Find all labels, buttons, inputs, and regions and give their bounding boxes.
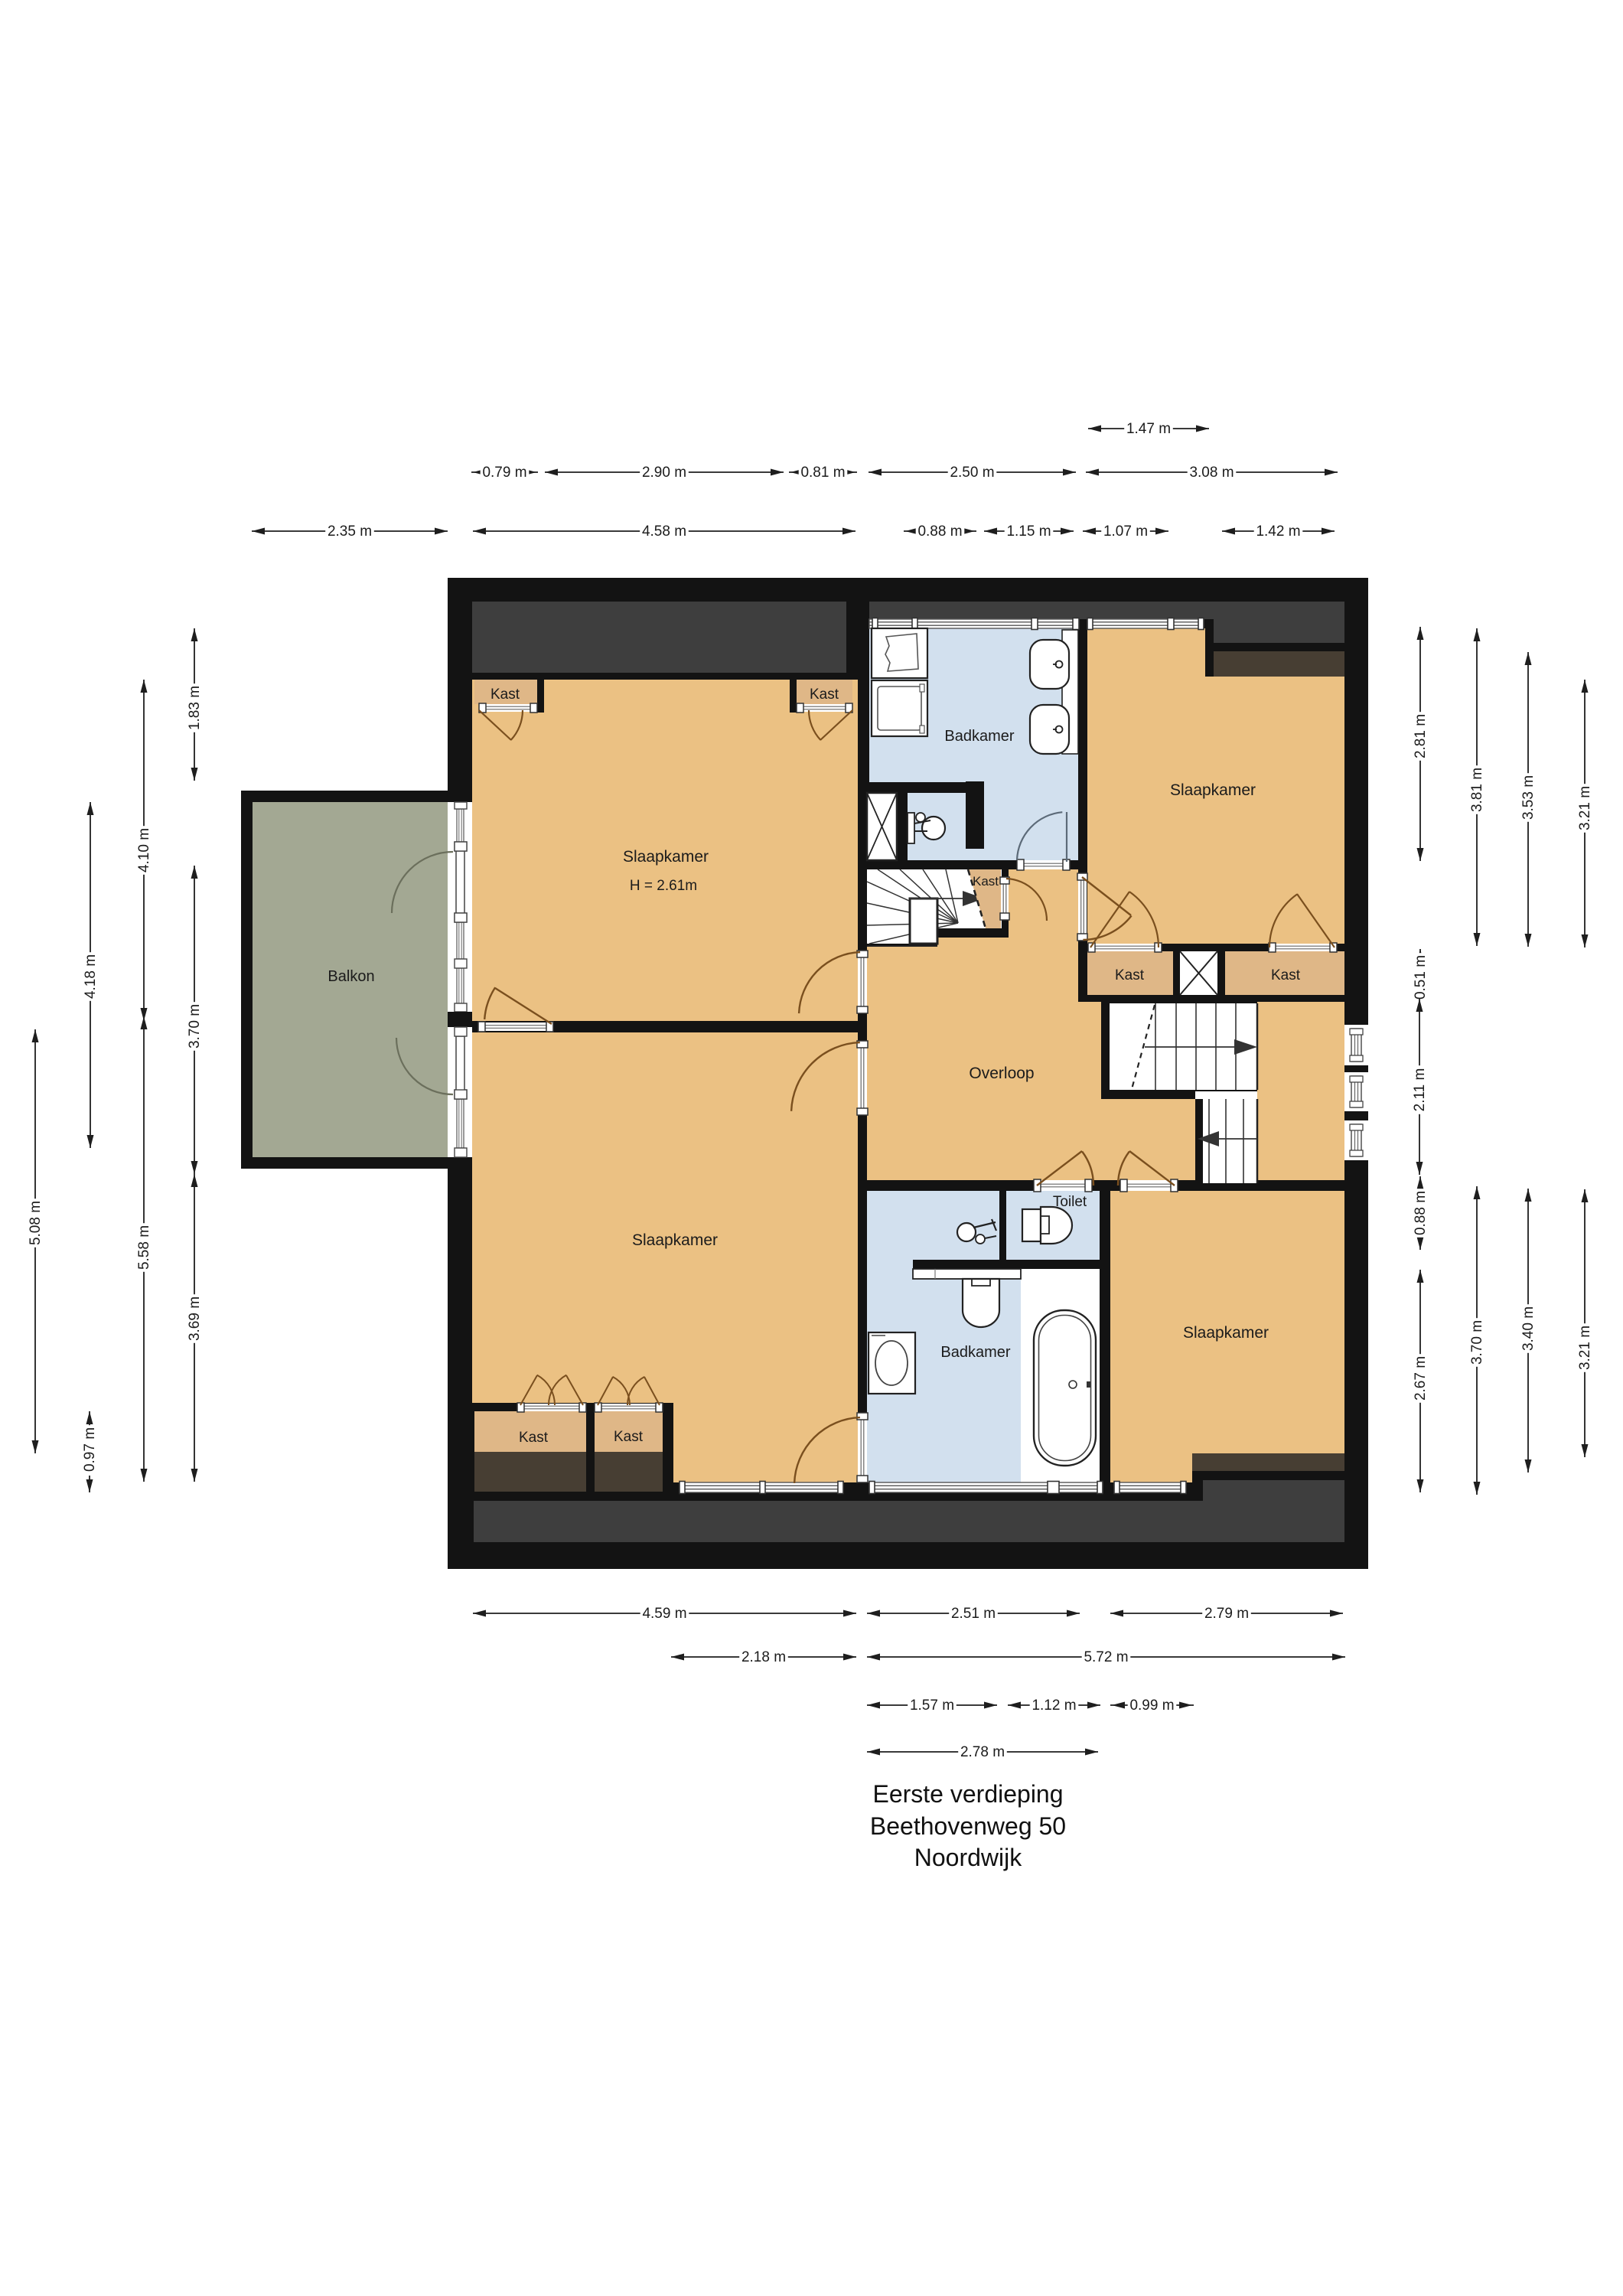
svg-text:0.79 m: 0.79 m [482,465,526,481]
svg-text:Kast: Kast [614,1429,644,1445]
svg-text:1.83 m: 1.83 m [187,686,203,730]
svg-text:Kast: Kast [519,1430,549,1446]
svg-text:Kast: Kast [490,687,520,703]
svg-text:3.21 m: 3.21 m [1577,1326,1593,1370]
svg-text:0.88 m: 0.88 m [1413,1191,1429,1235]
svg-text:Badkamer: Badkamer [940,1344,1010,1361]
svg-text:2.35 m: 2.35 m [328,523,372,540]
svg-text:1.57 m: 1.57 m [910,1698,954,1714]
svg-text:2.90 m: 2.90 m [642,465,686,481]
svg-text:Eerste verdieping: Eerste verdieping [872,1780,1063,1808]
svg-text:2.18 m: 2.18 m [741,1649,786,1665]
svg-text:3.70 m: 3.70 m [1469,1320,1485,1365]
svg-text:Slaapkamer: Slaapkamer [623,848,709,866]
svg-text:3.08 m: 3.08 m [1189,465,1234,481]
svg-text:1.15 m: 1.15 m [1006,523,1051,540]
svg-text:Kast: Kast [1115,967,1145,983]
svg-text:1.42 m: 1.42 m [1256,523,1300,540]
svg-text:5.72 m: 5.72 m [1084,1649,1128,1665]
svg-text:1.47 m: 1.47 m [1126,421,1171,437]
svg-text:1.07 m: 1.07 m [1103,523,1148,540]
svg-text:3.81 m: 3.81 m [1469,768,1485,812]
svg-text:3.40 m: 3.40 m [1520,1306,1537,1351]
svg-text:5.08 m: 5.08 m [28,1201,44,1245]
svg-text:Kast: Kast [1271,967,1301,983]
svg-text:2.81 m: 2.81 m [1413,714,1429,758]
svg-text:0.99 m: 0.99 m [1129,1698,1174,1714]
svg-text:2.50 m: 2.50 m [950,465,994,481]
svg-text:4.10 m: 4.10 m [136,828,152,872]
svg-text:Toilet: Toilet [1053,1194,1087,1210]
svg-text:0.88 m: 0.88 m [917,523,962,540]
svg-text:4.18 m: 4.18 m [83,954,99,999]
svg-text:Badkamer: Badkamer [944,728,1014,745]
svg-text:5.58 m: 5.58 m [136,1225,152,1270]
svg-text:Kast: Kast [810,687,839,703]
svg-text:Overloop: Overloop [969,1065,1034,1082]
svg-text:1.12 m: 1.12 m [1031,1698,1076,1714]
svg-text:3.69 m: 3.69 m [187,1296,203,1341]
svg-text:4.58 m: 4.58 m [642,523,686,540]
svg-text:Noordwijk: Noordwijk [914,1844,1022,1871]
svg-text:4.59 m: 4.59 m [642,1606,686,1622]
svg-text:Slaapkamer: Slaapkamer [632,1231,718,1249]
svg-text:2.51 m: 2.51 m [951,1606,996,1622]
svg-text:Slaapkamer: Slaapkamer [1170,781,1256,799]
svg-text:0.81 m: 0.81 m [800,465,845,481]
svg-text:Slaapkamer: Slaapkamer [1183,1324,1269,1342]
svg-text:H = 2.61m: H = 2.61m [630,878,697,894]
svg-text:0.97 m: 0.97 m [82,1427,98,1472]
svg-text:2.78 m: 2.78 m [960,1744,1005,1760]
svg-text:Kast: Kast [973,874,999,889]
svg-text:Balkon: Balkon [328,968,374,985]
svg-text:3.21 m: 3.21 m [1577,786,1593,830]
svg-text:Beethovenweg 50: Beethovenweg 50 [870,1812,1066,1840]
svg-text:0.51 m: 0.51 m [1413,955,1429,1000]
svg-text:2.67 m: 2.67 m [1413,1356,1429,1401]
svg-text:3.53 m: 3.53 m [1520,775,1537,820]
svg-text:3.70 m: 3.70 m [187,1004,203,1049]
svg-text:2.11 m: 2.11 m [1412,1068,1428,1112]
svg-text:2.79 m: 2.79 m [1204,1606,1249,1622]
